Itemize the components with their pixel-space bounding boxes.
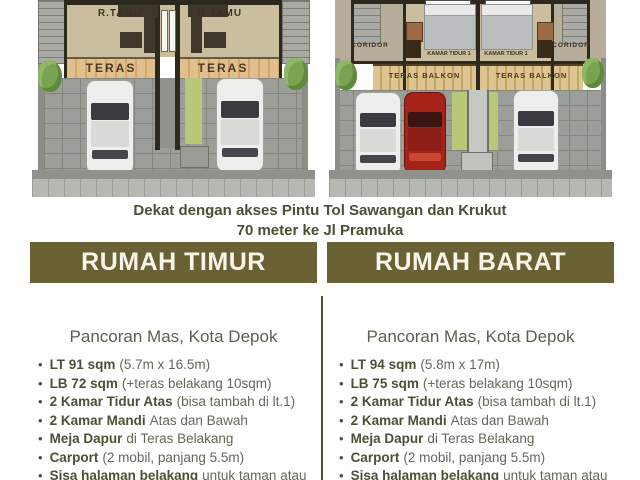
sidewalk-edge bbox=[329, 170, 612, 179]
wall bbox=[351, 61, 590, 64]
pillow bbox=[425, 5, 475, 16]
car-rear-window bbox=[409, 153, 441, 161]
car-windshield bbox=[91, 103, 130, 120]
room-label: R.TAMU bbox=[88, 8, 152, 19]
walkway bbox=[467, 90, 489, 152]
feature-rest: untuk taman atau bbox=[503, 467, 607, 480]
car-rear-window bbox=[222, 148, 259, 157]
car-windshield bbox=[360, 113, 397, 128]
wardrobe bbox=[537, 22, 554, 42]
car-windshield bbox=[518, 111, 555, 126]
bush bbox=[284, 58, 308, 90]
feature-bold: Meja Dapur bbox=[351, 430, 424, 449]
utility-box bbox=[180, 146, 209, 168]
feature-item: Carport(2 mobil, panjang 5.5m) bbox=[36, 449, 328, 468]
feature-item: 2 Kamar Tidur Atas(bisa tambah di lt.1) bbox=[36, 393, 328, 412]
garden-strip bbox=[452, 92, 467, 150]
feature-rest: (2 mobil, panjang 5.5m) bbox=[403, 449, 545, 468]
feature-item: LT 94 sqm(5.8m x 17m) bbox=[337, 356, 629, 375]
feature-bold: LB 75 sqm bbox=[351, 375, 419, 394]
feature-rest: (bisa tambah di lt.1) bbox=[177, 393, 296, 412]
feature-rest: (5.7m x 16.5m) bbox=[119, 356, 210, 375]
walkway-pad bbox=[461, 152, 493, 172]
feature-item: LT 91 sqm(5.7m x 16.5m) bbox=[36, 356, 328, 375]
bed bbox=[424, 4, 476, 50]
stairs bbox=[282, 0, 310, 64]
teras-balkon-label: TERAS BALKON bbox=[373, 71, 476, 80]
wall bbox=[351, 0, 354, 62]
stairs bbox=[38, 0, 66, 64]
wall bbox=[64, 0, 67, 78]
feature-item: Sisa halaman belakanguntuk taman atau bbox=[337, 467, 629, 480]
car-white bbox=[355, 92, 401, 176]
wall bbox=[64, 0, 282, 5]
car-windshield bbox=[408, 112, 442, 126]
banner-rumah-timur: RUMAH TIMUR bbox=[30, 242, 317, 283]
feature-bold: Meja Dapur bbox=[50, 430, 123, 449]
feature-rest: untuk taman atau bbox=[202, 467, 306, 480]
feature-item: 2 Kamar Tidur Atas(bisa tambah di lt.1) bbox=[337, 393, 629, 412]
feature-bold: Sisa halaman belakang bbox=[50, 467, 199, 480]
location-west: Pancoran Mas, Kota Depok bbox=[327, 327, 614, 347]
feature-bold: Carport bbox=[50, 449, 99, 468]
bedroom-label: KAMAR TIDUR 1 bbox=[472, 51, 540, 57]
sofa bbox=[191, 17, 202, 53]
feature-rest: di Teras Belakang bbox=[126, 430, 233, 449]
bush bbox=[38, 60, 62, 92]
car-roof bbox=[91, 121, 130, 147]
sidewalk bbox=[32, 179, 315, 197]
feature-item: Carport(2 mobil, panjang 5.5m) bbox=[337, 449, 629, 468]
feature-bold: 2 Kamar Mandi bbox=[50, 412, 146, 431]
sidewalk bbox=[329, 179, 612, 197]
center-infill bbox=[160, 78, 175, 148]
car-rear-window bbox=[92, 150, 129, 159]
feature-rest: Atas dan Bawah bbox=[150, 412, 248, 431]
door bbox=[169, 10, 176, 52]
car-rear-window bbox=[518, 154, 553, 162]
feature-item: LB 72 sqm(+teras belakang 10sqm) bbox=[36, 375, 328, 394]
pillow bbox=[482, 5, 532, 16]
car-white bbox=[513, 90, 559, 176]
garden-strip bbox=[185, 78, 202, 144]
car-rear-window bbox=[360, 155, 395, 163]
car-roof bbox=[360, 129, 397, 152]
table bbox=[120, 32, 142, 48]
feature-rest: di Teras Belakang bbox=[427, 430, 534, 449]
feature-bold: Sisa halaman belakang bbox=[351, 467, 500, 480]
feature-list-west: LT 94 sqm(5.8m x 17m) LB 75 sqm(+teras b… bbox=[337, 356, 629, 480]
bush bbox=[335, 60, 357, 90]
teras-label: TERAS bbox=[78, 61, 144, 75]
bed bbox=[481, 4, 533, 50]
car-roof bbox=[408, 128, 442, 150]
sofa bbox=[144, 17, 155, 53]
headline-line-2: 70 meter ke Jl Pramuka bbox=[0, 222, 640, 239]
bush bbox=[582, 58, 604, 88]
stairs bbox=[353, 0, 381, 44]
car-windshield bbox=[221, 101, 260, 118]
flyer: R.TAMU R.TAMU TERAS TERAS bbox=[0, 0, 640, 480]
teras-label: TERAS bbox=[190, 61, 256, 75]
room-label: R.TAMU bbox=[188, 8, 252, 19]
car-white bbox=[86, 80, 134, 174]
car-red bbox=[404, 92, 446, 174]
feature-item: 2 Kamar MandiAtas dan Bawah bbox=[337, 412, 629, 431]
banner-rumah-barat: RUMAH BARAT bbox=[327, 242, 614, 283]
car-roof bbox=[221, 119, 260, 145]
floorplan-east: R.TAMU R.TAMU TERAS TERAS bbox=[30, 0, 317, 197]
headline-line-1: Dekat dengan akses Pintu Tol Sawangan da… bbox=[0, 202, 640, 219]
feature-bold: Carport bbox=[351, 449, 400, 468]
feature-item: Meja Dapurdi Teras Belakang bbox=[36, 430, 328, 449]
table bbox=[204, 32, 226, 48]
feature-bold: LT 91 sqm bbox=[50, 356, 116, 375]
teras-balkon-label: TERAS BALKON bbox=[480, 71, 583, 80]
stairs bbox=[562, 0, 590, 44]
feature-rest: (+teras belakang 10sqm) bbox=[423, 375, 573, 394]
door bbox=[161, 10, 168, 52]
feature-bold: 2 Kamar Mandi bbox=[351, 412, 447, 431]
feature-item: LB 75 sqm(+teras belakang 10sqm) bbox=[337, 375, 629, 394]
wall bbox=[587, 0, 590, 62]
car-white bbox=[216, 78, 264, 172]
feature-rest: (+teras belakang 10sqm) bbox=[122, 375, 272, 394]
feature-item: Meja Dapurdi Teras Belakang bbox=[337, 430, 629, 449]
feature-bold: LT 94 sqm bbox=[351, 356, 417, 375]
sidewalk-edge bbox=[32, 170, 315, 179]
coridor-label: CORIDOR bbox=[540, 42, 602, 49]
feature-rest: (bisa tambah di lt.1) bbox=[478, 393, 597, 412]
feature-list-east: LT 91 sqm(5.7m x 16.5m) LB 72 sqm(+teras… bbox=[36, 356, 328, 480]
feature-rest: Atas dan Bawah bbox=[451, 412, 549, 431]
feature-bold: 2 Kamar Tidur Atas bbox=[50, 393, 173, 412]
coridor-label: CORIDOR bbox=[339, 42, 401, 49]
wardrobe bbox=[406, 22, 423, 42]
location-east: Pancoran Mas, Kota Depok bbox=[30, 327, 317, 347]
feature-item: Sisa halaman belakanguntuk taman atau bbox=[36, 467, 328, 480]
car-roof bbox=[518, 128, 555, 152]
floorplan-west: CORIDOR CORIDOR KAMAR TIDUR 1 KAMAR TIDU… bbox=[327, 0, 614, 197]
feature-bold: LB 72 sqm bbox=[50, 375, 118, 394]
feature-item: 2 Kamar MandiAtas dan Bawah bbox=[36, 412, 328, 431]
wall bbox=[279, 0, 282, 78]
feature-rest: (5.8m x 17m) bbox=[420, 356, 500, 375]
feature-bold: 2 Kamar Tidur Atas bbox=[351, 393, 474, 412]
feature-rest: (2 mobil, panjang 5.5m) bbox=[102, 449, 244, 468]
